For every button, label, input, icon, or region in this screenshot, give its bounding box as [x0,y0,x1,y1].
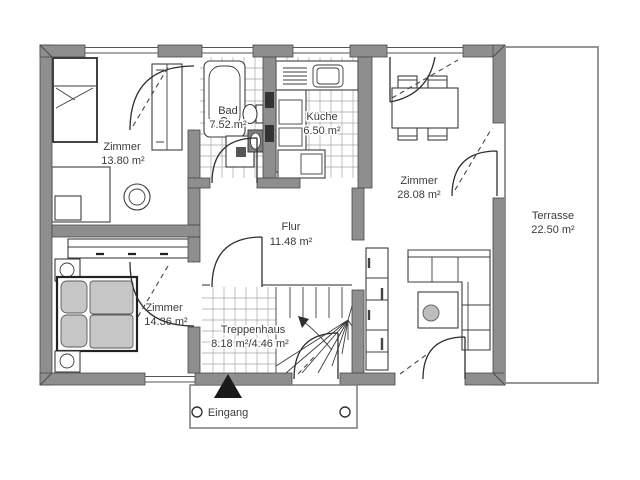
washbasin-icon [248,130,263,152]
wardrobe-icon [68,239,197,258]
room-label-area: 7.52 m² [209,119,247,131]
room-label-area: 22.50 m² [531,224,575,236]
nightstand-icon [55,351,80,372]
room-label-area: 14.36 m² [144,316,188,328]
room-label-area: 13.80 m² [101,155,145,167]
room-label-area: 8.18 m²/4.46 m² [211,338,289,350]
kitchen-counter-icon [276,61,358,90]
garden-door-icon [423,337,465,379]
room-label-name: Zimmer [400,175,438,187]
floorplan-svg: Eingang Zimmer 13.80 m² Bad 7.52 m² Küch… [0,0,640,480]
shelf-icon [366,248,388,370]
single-bed-icon [53,58,97,142]
room-label-name: Küche [306,111,337,123]
room-label-name: Treppenhaus [221,324,286,336]
floorplan-page: Eingang Zimmer 13.80 m² Bad 7.52 m² Küch… [0,0,640,480]
room-label-area: 11.48 m² [270,236,313,248]
door-stairwell-icon [212,237,262,287]
room-label-name: Flur [282,221,301,233]
desk-icon [52,167,110,222]
entrance-label: Eingang [208,407,248,419]
post-icon [340,407,350,417]
coffee-table-icon [418,292,458,328]
post-icon [192,407,202,417]
room-label-name: Zimmer [145,302,183,314]
staircase-icon [276,287,352,373]
room-label-name: Bad [218,105,238,117]
chair-icon [124,184,150,210]
room-label-name: Zimmer [103,141,141,153]
room-label-name: Terrasse [532,210,574,222]
dining-table-icon [392,88,458,128]
double-bed-icon [57,277,137,351]
kitchen-counter-icon [278,150,325,178]
room-label-area: 28.08 m² [397,189,441,201]
room-label-area: 6.50 m² [303,125,341,137]
wardrobe-icon [152,64,182,150]
